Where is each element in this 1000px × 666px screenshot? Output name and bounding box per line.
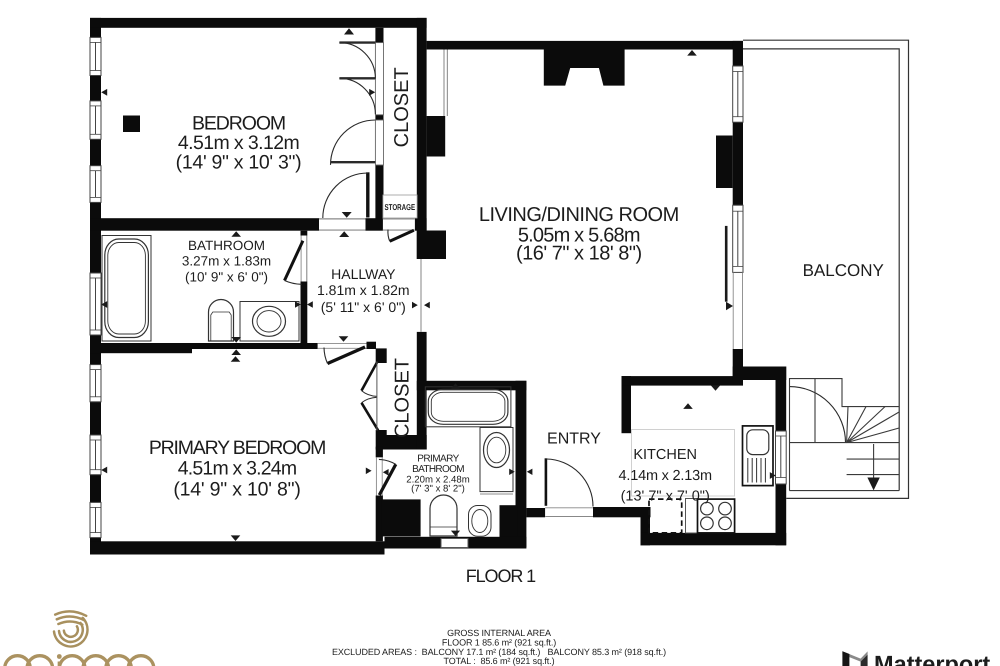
svg-text:STORAGE: STORAGE	[385, 202, 416, 212]
svg-text:BATHROOM: BATHROOM	[188, 238, 265, 253]
svg-text:LIVING/DINING ROOM: LIVING/DINING ROOM	[479, 204, 679, 226]
svg-text:3.27m x 1.83m: 3.27m x 1.83m	[182, 254, 271, 269]
svg-text:BATHROOM: BATHROOM	[412, 464, 464, 475]
svg-text:Matterport: Matterport	[874, 651, 990, 666]
svg-text:4.14m x 2.13m: 4.14m x 2.13m	[619, 468, 712, 484]
svg-text:4.51m x 3.24m: 4.51m x 3.24m	[178, 458, 297, 480]
svg-text:FLOOR 1: FLOOR 1	[466, 566, 536, 586]
svg-text:(14' 9" x 10' 3"): (14' 9" x 10' 3")	[176, 152, 302, 174]
svg-text:GROSS INTERNAL AREA: GROSS INTERNAL AREA	[447, 628, 551, 638]
svg-text:(5' 11" x 6' 0"): (5' 11" x 6' 0")	[321, 299, 406, 315]
svg-text:(10' 9" x 6' 0"): (10' 9" x 6' 0")	[185, 269, 268, 284]
svg-text:(7' 3" x 8' 2"): (7' 3" x 8' 2")	[411, 484, 465, 495]
svg-text:(14' 9" x 10' 8"): (14' 9" x 10' 8")	[173, 479, 300, 501]
svg-text:PRIMARY BEDROOM: PRIMARY BEDROOM	[149, 437, 325, 459]
svg-text:CLOSET: CLOSET	[391, 67, 413, 147]
svg-text:CLOSET: CLOSET	[392, 358, 414, 438]
svg-text:HALLWAY: HALLWAY	[331, 266, 396, 282]
svg-text:ENTRY: ENTRY	[547, 431, 601, 448]
svg-text:BALCONY: BALCONY	[803, 261, 884, 280]
svg-text:(16' 7" x 18' 8"): (16' 7" x 18' 8")	[516, 243, 642, 265]
svg-text:1.81m x 1.82m: 1.81m x 1.82m	[317, 282, 410, 298]
svg-text:PRIMARY: PRIMARY	[417, 453, 459, 464]
svg-text:(13' 7" x 7' 0"): (13' 7" x 7' 0")	[621, 489, 710, 505]
svg-text:KITCHEN: KITCHEN	[633, 447, 697, 463]
svg-text:TOTAL : 85.6 m² (921 sq.ft.): TOTAL : 85.6 m² (921 sq.ft.)	[444, 656, 555, 666]
